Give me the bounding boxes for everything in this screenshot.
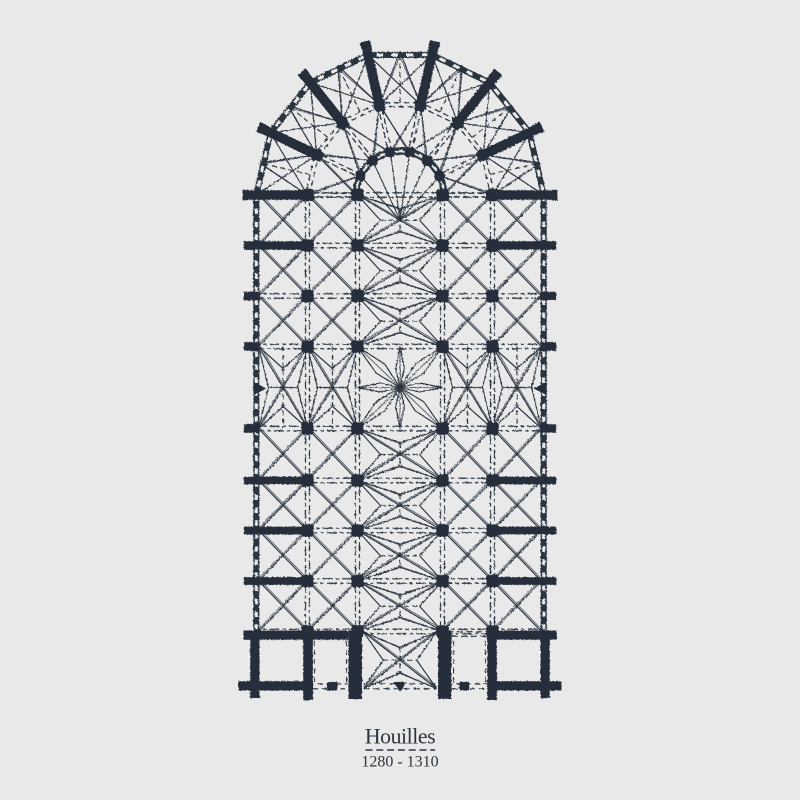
svg-text:1280 - 1310: 1280 - 1310 — [361, 754, 438, 771]
svg-text:Houilles: Houilles — [365, 725, 435, 749]
